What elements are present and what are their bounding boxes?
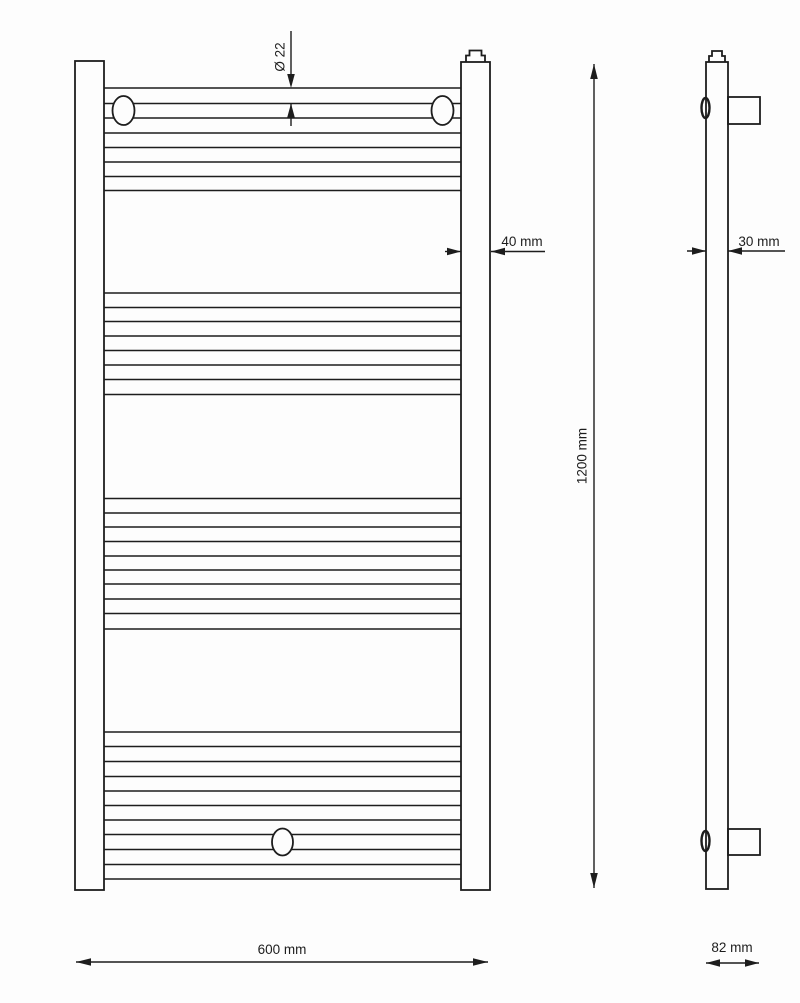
arrow-down-icon (287, 74, 295, 88)
overall-height-label: 1200 mm (575, 428, 590, 484)
arrow-right-icon (692, 247, 706, 255)
left-rail (75, 61, 104, 890)
side-valve-cap (709, 51, 725, 62)
side-view: 30 mm 82 mm (687, 51, 785, 967)
overall-width-label: 600 mm (258, 942, 307, 957)
wall-bracket-bottom (728, 829, 760, 855)
arrow-right-icon (745, 959, 759, 967)
wall-bracket-top (728, 97, 760, 124)
total-depth-label: 82 mm (711, 940, 752, 955)
dim-total-depth: 82 mm (706, 940, 759, 967)
arrow-up-icon (287, 104, 295, 118)
technical-drawing-canvas: Ø 22 40 mm 1200 mm 600 mm (0, 0, 800, 1003)
dim-rail-depth: 30 mm (687, 234, 785, 255)
bracket-fixing-right (432, 96, 454, 125)
dim-tube-diameter: Ø 22 (273, 31, 295, 126)
bracket-fixing-bottom (272, 829, 293, 856)
right-rail-valve-cap (466, 51, 485, 63)
right-rail (461, 62, 490, 890)
front-view: Ø 22 40 mm 1200 mm 600 mm (75, 31, 598, 966)
dim-overall-width: 600 mm (76, 942, 488, 966)
rail-width-label: 40 mm (501, 234, 542, 249)
arrow-up-icon (590, 64, 598, 79)
arrow-right-icon (473, 958, 488, 966)
dim-rail-width: 40 mm (445, 234, 545, 255)
rail-depth-label: 30 mm (738, 234, 779, 249)
side-rail (706, 62, 728, 889)
arrow-right-icon (447, 248, 461, 256)
dim-overall-height: 1200 mm (575, 64, 598, 888)
tube-diameter-label: Ø 22 (273, 42, 288, 71)
bracket-fixing-left (113, 96, 135, 125)
drawing-page: Ø 22 40 mm 1200 mm 600 mm (0, 0, 800, 1003)
tube-lines (104, 88, 461, 879)
arrow-left-icon (706, 959, 720, 967)
arrow-left-icon (76, 958, 91, 966)
arrow-down-icon (590, 873, 598, 888)
